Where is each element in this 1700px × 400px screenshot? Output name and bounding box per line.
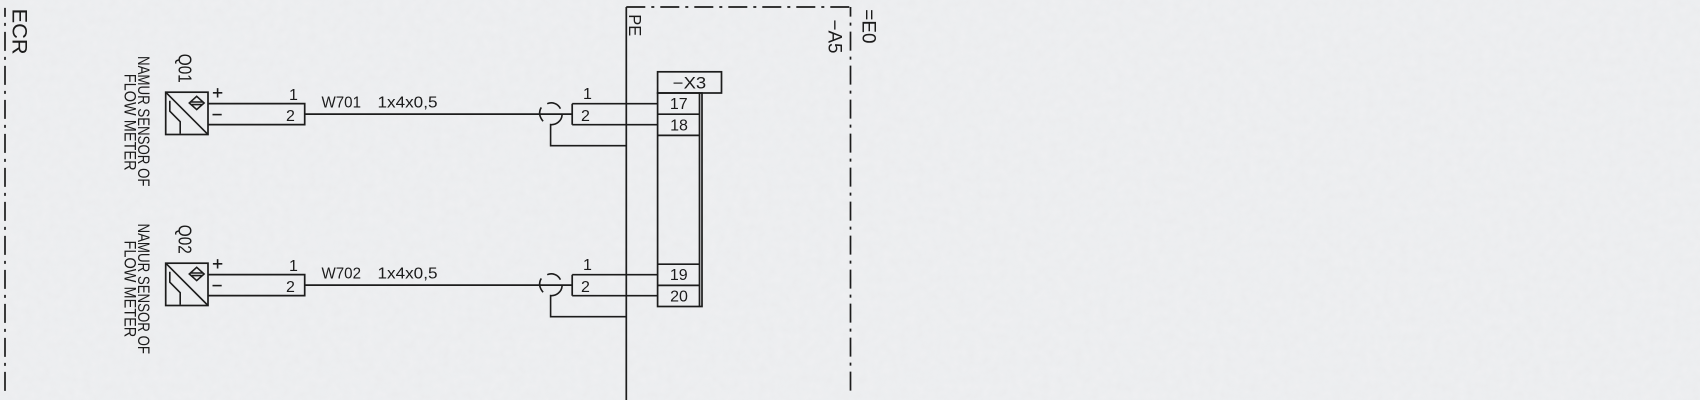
svg-text:1: 1 [289, 87, 298, 104]
svg-text:W702: W702 [322, 266, 362, 283]
svg-text:2: 2 [581, 108, 590, 125]
svg-text:1: 1 [289, 258, 298, 275]
svg-text:−A5: −A5 [824, 20, 845, 54]
svg-text:FLOW METER: FLOW METER [120, 74, 139, 171]
svg-text:20: 20 [670, 288, 688, 305]
svg-text:−X3: −X3 [673, 74, 706, 92]
svg-text:2: 2 [581, 279, 590, 296]
svg-text:1: 1 [583, 86, 592, 103]
svg-text:1: 1 [583, 257, 592, 274]
svg-text:W701: W701 [322, 95, 362, 112]
svg-text:18: 18 [670, 117, 688, 134]
svg-text:17: 17 [670, 96, 688, 113]
svg-text:=E0: =E0 [858, 9, 879, 43]
svg-text:2: 2 [286, 279, 295, 296]
svg-text:FLOW METER: FLOW METER [120, 241, 139, 338]
svg-text:1x4x0,5: 1x4x0,5 [378, 95, 438, 112]
svg-text:PE: PE [625, 14, 645, 36]
svg-text:Q02: Q02 [175, 225, 195, 254]
svg-text:2: 2 [286, 108, 295, 125]
svg-text:Q01: Q01 [175, 54, 195, 83]
svg-text:19: 19 [670, 267, 688, 284]
svg-text:1x4x0,5: 1x4x0,5 [378, 266, 438, 283]
svg-text:ECR: ECR [8, 9, 32, 55]
